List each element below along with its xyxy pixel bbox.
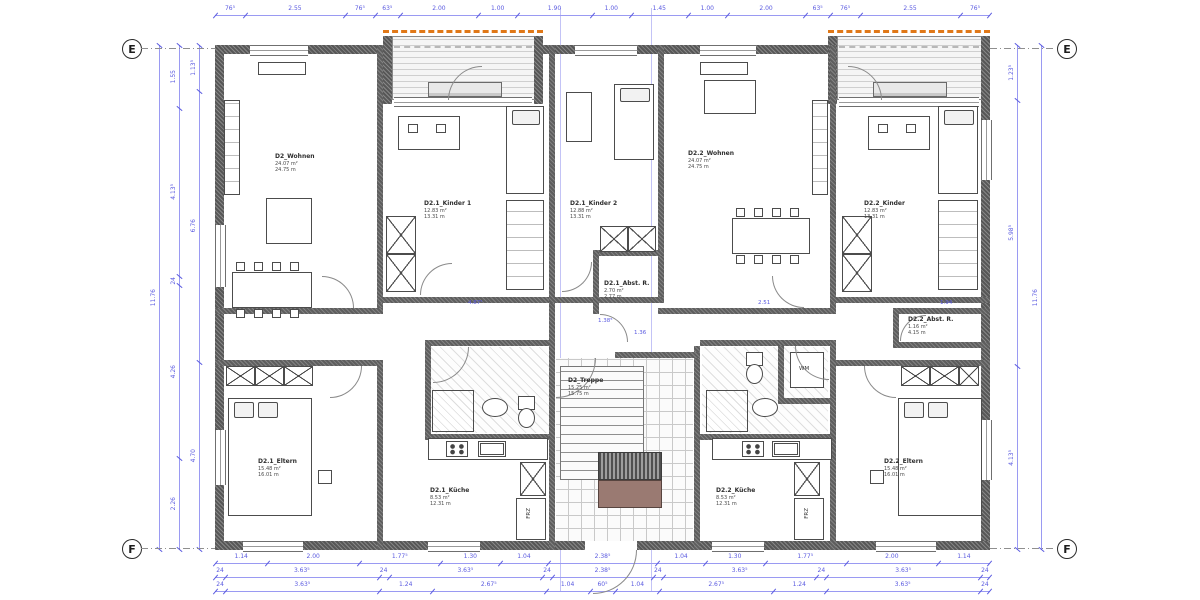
wardrobe-icon <box>901 366 930 386</box>
window <box>981 120 992 180</box>
pillow <box>928 402 948 418</box>
wardrobe-icon <box>386 254 416 292</box>
sink-icon <box>772 441 800 457</box>
tall-cabinet-icon <box>794 462 820 496</box>
dimension-col-left-outer: 11.76 <box>150 45 163 550</box>
loggia-pier <box>534 36 543 104</box>
dimension-col-right-inner: 1.23⁵5.98⁵4.13⁵ <box>1008 45 1021 550</box>
grid-marker-f-left: F <box>122 539 142 559</box>
door-arc <box>420 263 452 295</box>
dimension-col-right-outer: 11.76 <box>1032 45 1045 550</box>
wardrobe-icon <box>842 254 872 292</box>
inline-dimension: 1.94 <box>940 300 952 306</box>
wardrobe-icon <box>930 366 959 386</box>
freezer <box>516 498 546 540</box>
tall-cabinet-icon <box>520 462 546 496</box>
chair <box>436 124 446 133</box>
wall-interior <box>830 297 990 303</box>
window <box>215 430 226 485</box>
wardrobe-icon <box>386 216 416 254</box>
door-arc <box>562 262 592 292</box>
wall-storage-1 <box>593 250 599 314</box>
room-label-treppe: D2_Treppe 15.25 m² 15.75 m <box>568 377 603 397</box>
entry-door-opening <box>585 541 637 550</box>
pillow <box>944 110 974 125</box>
couch <box>938 200 978 290</box>
chair <box>254 309 263 318</box>
desk <box>398 116 460 150</box>
thermal-envelope-dashed-line <box>828 30 990 33</box>
dimension-row-top: 76⁵2.5576⁵63⁵2.001.001.901.001.451.002.0… <box>215 6 990 19</box>
wall-interior <box>658 45 664 303</box>
wall-stair-top <box>615 352 700 358</box>
wall-interior <box>377 360 383 550</box>
grid-axis-line <box>141 48 215 49</box>
chair <box>236 309 245 318</box>
chair <box>290 309 299 318</box>
washbasin-icon <box>482 398 508 417</box>
balcony-dashed-line <box>839 46 979 48</box>
room-label-eltern-2: D2.2_Eltern 15.48 m² 16.01 m <box>884 458 923 478</box>
grid-marker-f-right: F <box>1057 539 1077 559</box>
window <box>250 45 308 56</box>
chair <box>878 124 888 133</box>
room-label-kinder-1: D2.1_Kinder 1 12.83 m² 13.31 m <box>424 200 471 220</box>
dining-table <box>232 272 312 308</box>
chair <box>272 309 281 318</box>
washbasin-icon <box>752 398 778 417</box>
door-arc <box>864 366 896 398</box>
thermal-envelope-dashed-line <box>383 30 543 33</box>
pillow <box>512 110 540 125</box>
window <box>876 541 936 552</box>
stair-flight-block <box>598 480 662 508</box>
wall-bath-1 <box>425 340 431 440</box>
sofa <box>812 100 828 195</box>
balcony-dashed-line <box>394 46 532 48</box>
grid-axis-line <box>990 548 1056 549</box>
sink-icon <box>478 441 506 457</box>
window <box>700 45 756 56</box>
chair <box>254 262 263 271</box>
stove-icon <box>742 441 764 457</box>
room-label-abst-1: D2.1_Abst. R. 2.70 m² 2.77 m <box>604 280 649 300</box>
loggia-pier <box>981 36 990 104</box>
inline-dimension: 4.87⁵ <box>468 300 482 306</box>
freezer-label: FRZ <box>526 508 532 519</box>
pillow <box>620 88 650 102</box>
loggia-pier <box>383 36 392 104</box>
pillow <box>904 402 924 418</box>
wardrobe-icon <box>842 216 872 254</box>
wardrobe-icon <box>226 366 255 386</box>
chair <box>906 124 916 133</box>
chair <box>272 262 281 271</box>
wardrobe-icon <box>628 226 656 252</box>
window <box>243 541 303 552</box>
pillow <box>234 402 254 418</box>
chair <box>236 262 245 271</box>
chair <box>754 255 763 264</box>
chair <box>736 255 745 264</box>
floor-plan-canvas: 76⁵2.5576⁵63⁵2.001.001.901.001.451.002.0… <box>0 0 1200 600</box>
window <box>712 541 764 552</box>
wall-stair-left <box>549 303 555 550</box>
chair <box>772 255 781 264</box>
dimension-col-left-mid: 1.554.13⁵244.262.26 <box>170 45 183 550</box>
room-label-wohnen-2: D2.2_Wohnen 24.07 m² 24.75 m <box>688 150 734 170</box>
freezer-label: FRZ <box>804 508 810 519</box>
window <box>575 45 637 56</box>
door-arc <box>330 366 362 398</box>
toilet-bowl-icon <box>746 364 763 384</box>
nightstand <box>318 470 332 484</box>
wall-interior <box>658 308 836 314</box>
couch <box>506 200 544 290</box>
wall-interior <box>377 297 555 303</box>
chair <box>754 208 763 217</box>
balcony-bench <box>873 82 947 97</box>
washing-machine-label: WM <box>799 366 809 372</box>
room-label-wohnen-1: D2_Wohnen 24.07 m² 24.75 m <box>275 153 315 173</box>
grid-axis-line <box>990 48 1056 49</box>
grid-marker-e-right: E <box>1057 39 1077 59</box>
door-arc <box>772 276 804 308</box>
wall-interior <box>549 45 555 303</box>
couch <box>704 80 756 114</box>
dining-table <box>732 218 810 254</box>
sideboard <box>258 62 306 75</box>
shower-icon <box>432 390 474 432</box>
desk <box>868 116 930 150</box>
toilet-bowl-icon <box>518 408 535 428</box>
nightstand <box>870 470 884 484</box>
shower-icon <box>706 390 748 432</box>
chair <box>290 262 299 271</box>
room-label-eltern-1: D2.1_Eltern 15.48 m² 16.01 m <box>258 458 297 478</box>
dimension-col-left-inner: 1.13⁵6.764.70 <box>190 45 203 550</box>
wall-storage-2 <box>893 308 990 314</box>
chair <box>408 124 418 133</box>
room-label-kueche-1: D2.1_Küche 8.53 m² 12.31 m <box>430 487 469 507</box>
window <box>215 225 226 287</box>
chair <box>736 208 745 217</box>
grid-axis-line <box>141 548 215 549</box>
window <box>981 420 992 480</box>
wall-bath-1 <box>425 340 555 346</box>
inline-dimension: 2.51 <box>758 300 770 306</box>
wall-wm-closet <box>778 346 784 404</box>
sideboard <box>700 62 748 75</box>
chair <box>772 208 781 217</box>
chair <box>790 208 799 217</box>
freezer <box>794 498 824 540</box>
wardrobe-icon <box>959 366 979 386</box>
inline-dimension: 1.36 <box>634 330 646 336</box>
wall-wm-closet <box>778 398 836 404</box>
grid-marker-e-left: E <box>122 39 142 59</box>
wall-interior <box>830 45 836 308</box>
pillow <box>258 402 278 418</box>
desk <box>566 92 592 142</box>
inline-dimension: 1.38⁵ <box>598 318 612 324</box>
wardrobe-icon <box>255 366 284 386</box>
wall-interior <box>377 45 383 308</box>
room-label-abst-2: D2.2_Abst. R. 1.16 m² 4.15 m <box>908 316 953 336</box>
chair <box>790 255 799 264</box>
wardrobe-icon <box>600 226 628 252</box>
sofa <box>224 100 240 195</box>
stair-landing-hatch <box>598 452 662 480</box>
table <box>266 198 312 244</box>
wall-storage-2 <box>893 342 990 348</box>
door-arc <box>322 276 354 308</box>
stove-icon <box>446 441 468 457</box>
room-label-kinder-2: D2.1_Kinder 2 12.88 m² 13.31 m <box>570 200 617 220</box>
window <box>428 541 480 552</box>
room-label-kueche-2: D2.2_Küche 8.53 m² 12.31 m <box>716 487 755 507</box>
wardrobe-icon <box>284 366 313 386</box>
room-label-kinder-3: D2.2_Kinder 12.83 m² 13.31 m <box>864 200 905 220</box>
wall-stair-right <box>694 346 700 550</box>
